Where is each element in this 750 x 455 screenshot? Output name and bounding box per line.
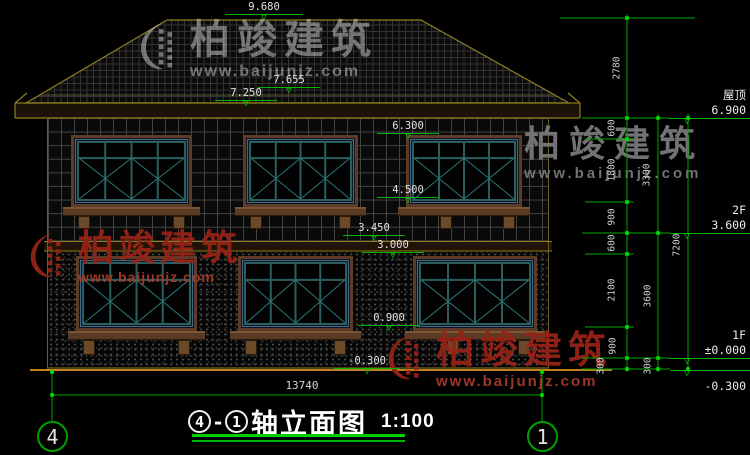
- level-label-roof: 屋顶 6.900 ▽: [670, 88, 750, 127]
- dim-label: 300: [596, 357, 607, 374]
- dim-label: 900: [608, 337, 619, 354]
- dimension-tick: [625, 356, 629, 360]
- elevation-marker-1f-window-head: 3.000▽: [362, 239, 424, 260]
- dimension-tick: [625, 16, 629, 20]
- dimension-tick: [50, 370, 54, 374]
- title-scale: 1:100: [381, 411, 435, 433]
- dim-label: 3600: [643, 285, 654, 308]
- dim-label: 600: [607, 234, 618, 251]
- dimension-tick: [625, 137, 629, 141]
- dimension-tick: [656, 231, 660, 235]
- title-bubble-a: 4: [188, 410, 211, 433]
- elevation-marker-grade: -0.300▽: [334, 355, 400, 376]
- dimension-tick: [625, 325, 629, 329]
- dimension-tick: [656, 116, 660, 120]
- elevation-triangle-icon: ▽: [362, 253, 424, 260]
- dim-label: 1800: [607, 159, 618, 182]
- elevation-triangle-icon: ▽: [358, 326, 420, 333]
- title-bubble-b: 1: [225, 410, 248, 433]
- elevation-marker-ridge: 9.680▽: [225, 1, 303, 22]
- dim-label: 300: [643, 357, 654, 374]
- grid-bubble-4: 4: [37, 421, 68, 452]
- elevation-marker-2f-window-sill: 4.500▽: [377, 184, 439, 205]
- elevation-triangle-icon: ▽: [684, 357, 690, 366]
- dimension-tick: [540, 370, 544, 374]
- dimension-tick: [625, 116, 629, 120]
- elevation-triangle-icon: ▽: [215, 101, 277, 108]
- level-label-grade: ▽ -0.300: [670, 370, 750, 394]
- elevation-triangle-icon: ▽: [684, 117, 690, 126]
- dimension-tick: [656, 367, 660, 371]
- title-dash: -: [212, 410, 224, 434]
- dimension-tick: [625, 367, 629, 371]
- dimension-tick: [50, 393, 54, 397]
- elevation-marker-eave-trim: 7.250▽: [215, 87, 277, 108]
- elevation-triangle-icon: ▽: [225, 15, 303, 22]
- dim-label: 600: [607, 119, 618, 136]
- dimension-tick: [625, 252, 629, 256]
- elevation-triangle-icon: ▽: [684, 232, 690, 241]
- dimension-tick: [540, 393, 544, 397]
- dimension-tick: [625, 231, 629, 235]
- elevation-triangle-icon: ▽: [684, 369, 690, 378]
- elevation-triangle-icon: ▽: [377, 134, 439, 141]
- dimension-tick: [656, 356, 660, 360]
- title-underline-thick: [192, 434, 405, 437]
- dim-label-total-width: 13740: [260, 379, 344, 392]
- dim-label: 2100: [607, 279, 618, 302]
- elevation-marker-2f-window-head: 6.300▽: [377, 120, 439, 141]
- dim-label: 2780: [612, 57, 623, 80]
- title-underline-thin: [192, 440, 405, 442]
- dim-label: 3300: [642, 164, 653, 187]
- elevation-marker-1f-window-sill: 0.900▽: [358, 312, 420, 333]
- level-label-1f: 1F ±0.000 ▽: [670, 328, 750, 367]
- dim-label: 900: [607, 208, 618, 225]
- grid-bubble-1: 1: [527, 421, 558, 452]
- elevation-triangle-icon: ▽: [334, 369, 400, 376]
- elevation-triangle-icon: ▽: [377, 198, 439, 205]
- elevation-drawing-canvas: 柏竣建筑 www.baijunjz.com 柏竣建筑 www.baijunjz.…: [0, 0, 750, 455]
- dim-label: 7200: [672, 234, 683, 257]
- dimension-tick: [625, 200, 629, 204]
